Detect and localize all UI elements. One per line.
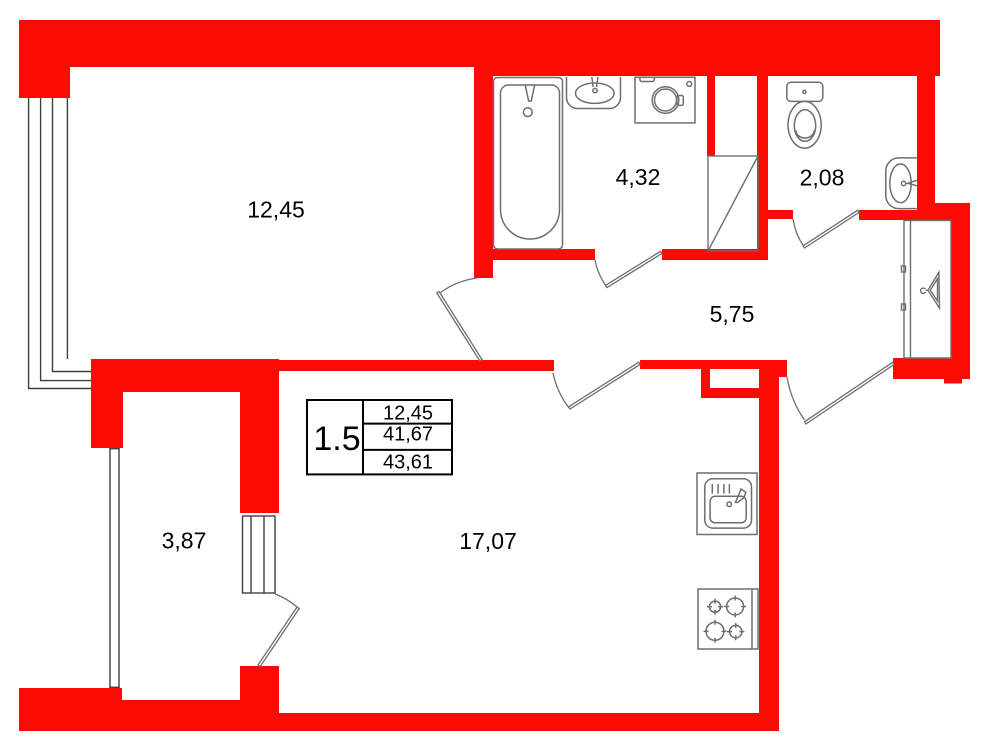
- svg-text:41,67: 41,67: [383, 424, 433, 446]
- svg-text:12,45: 12,45: [247, 197, 305, 223]
- svg-text:12,45: 12,45: [383, 403, 433, 425]
- svg-text:3,87: 3,87: [162, 528, 207, 554]
- svg-text:43,61: 43,61: [383, 452, 433, 474]
- svg-text:1.5: 1.5: [313, 420, 360, 458]
- svg-text:17,07: 17,07: [459, 528, 517, 554]
- svg-text:5,75: 5,75: [710, 301, 755, 327]
- svg-text:2,08: 2,08: [800, 165, 845, 191]
- svg-text:4,32: 4,32: [616, 164, 661, 190]
